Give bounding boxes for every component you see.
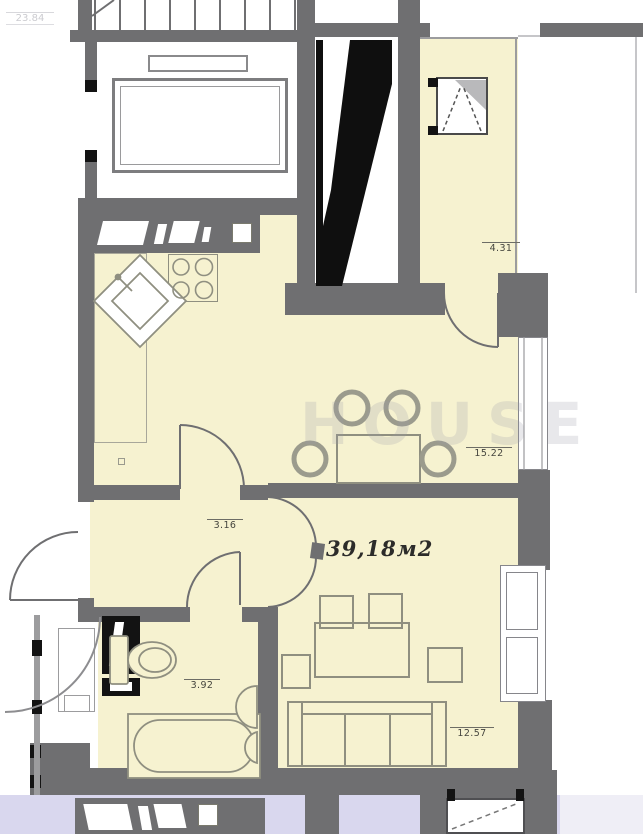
bathroom-door-arc xyxy=(187,552,240,607)
stair-flight-icon xyxy=(316,40,392,286)
living-door-arcs xyxy=(268,497,316,607)
stove-icon xyxy=(173,259,213,299)
corner-dimension-label: 23.84 xyxy=(6,12,54,25)
dimension-label-loggia: 4.31 xyxy=(482,242,520,254)
watermark: HOUSE xyxy=(300,390,596,458)
sofa-icon xyxy=(288,702,446,766)
dimension-label-living-room: 12.57 xyxy=(450,727,494,739)
bathtub-icon xyxy=(128,714,260,778)
loggia-door-arc xyxy=(444,293,498,347)
dimension-label-kitchen-dining: 15.22 xyxy=(466,447,512,459)
kitchen-sink-icon xyxy=(94,255,186,347)
duct-box-detail xyxy=(452,804,516,829)
entrance-door-arc xyxy=(10,532,78,600)
toilet-icon xyxy=(110,636,176,684)
total-area-label: 39,18м2 xyxy=(326,536,433,561)
staircase xyxy=(92,0,295,30)
floor-plan: HOUSE 4.31 15.22 3.16 3.92 12.57 39,18м2… xyxy=(0,0,643,834)
dimension-label-hallway: 3.16 xyxy=(207,519,243,531)
dimension-label-bathroom: 3.92 xyxy=(184,679,220,691)
ac-unit-detail xyxy=(443,80,486,131)
kitchen-door-arc xyxy=(180,425,244,489)
door-arcs xyxy=(5,293,498,712)
coffee-table-icon xyxy=(315,623,409,677)
lobby-door-arc xyxy=(5,617,100,712)
stool-icon xyxy=(282,594,462,688)
